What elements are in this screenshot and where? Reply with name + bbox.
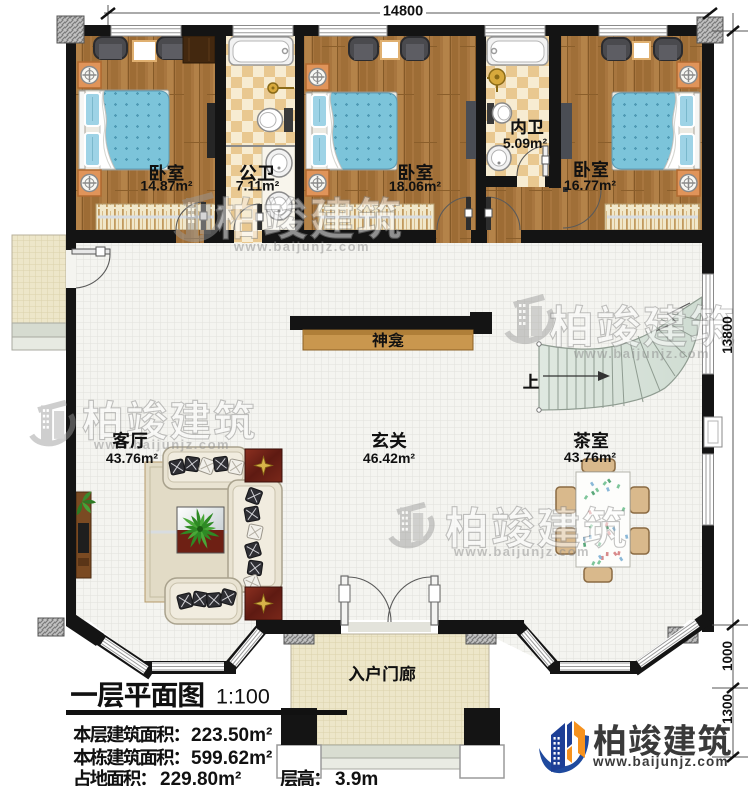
svg-text:43.76m²: 43.76m² — [106, 450, 158, 466]
svg-text:14.87m²: 14.87m² — [140, 178, 192, 194]
svg-text:1300: 1300 — [720, 694, 735, 724]
svg-text:7.11m²: 7.11m² — [236, 178, 280, 194]
svg-text:14800: 14800 — [383, 4, 423, 20]
svg-text:599.62m²: 599.62m² — [191, 748, 272, 769]
svg-text:13800: 13800 — [720, 316, 735, 354]
svg-text:5.09m²: 5.09m² — [503, 135, 548, 151]
svg-text:www.baijunjz.com: www.baijunjz.com — [233, 239, 370, 254]
svg-text:www.baijunjz.com: www.baijunjz.com — [453, 544, 590, 559]
svg-text:3.9m: 3.9m — [335, 769, 378, 786]
svg-text:1000: 1000 — [720, 641, 735, 671]
svg-text:46.42m²: 46.42m² — [363, 450, 415, 466]
svg-text:229.80m²: 229.80m² — [160, 769, 241, 786]
svg-text:223.50m²: 223.50m² — [191, 725, 272, 746]
svg-text:43.76m²: 43.76m² — [564, 449, 616, 465]
svg-text:1:100: 1:100 — [216, 685, 270, 709]
svg-text:16.77m²: 16.77m² — [564, 177, 616, 193]
svg-text:18.06m²: 18.06m² — [389, 178, 441, 194]
svg-text:www.baijunjz.com: www.baijunjz.com — [592, 754, 729, 769]
svg-text:www.baijunjz.com: www.baijunjz.com — [573, 346, 710, 361]
